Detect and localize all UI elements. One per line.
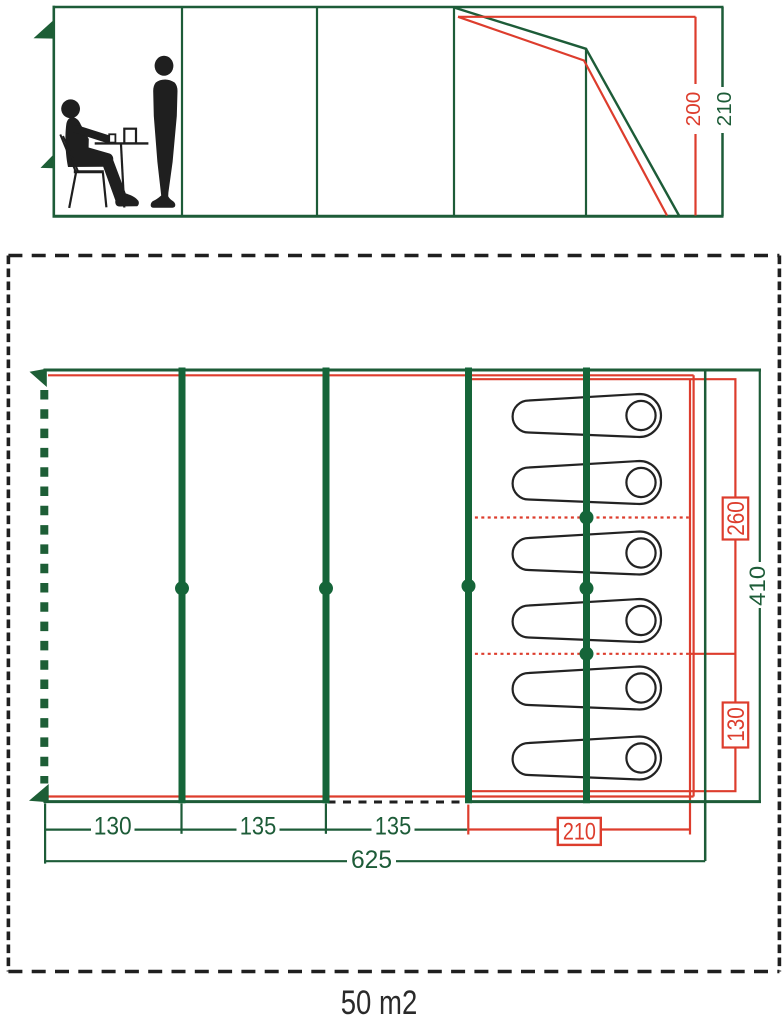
svg-text:50 m2: 50 m2 [341,984,418,1016]
svg-text:130: 130 [723,707,750,742]
svg-text:210: 210 [563,818,596,845]
svg-text:135: 135 [240,813,277,841]
svg-text:260: 260 [723,501,750,536]
svg-text:210: 210 [714,92,736,127]
svg-text:410: 410 [745,566,770,606]
svg-text:130: 130 [94,813,132,841]
svg-text:625: 625 [351,846,392,874]
svg-text:135: 135 [375,813,412,841]
svg-text:200: 200 [683,92,705,127]
